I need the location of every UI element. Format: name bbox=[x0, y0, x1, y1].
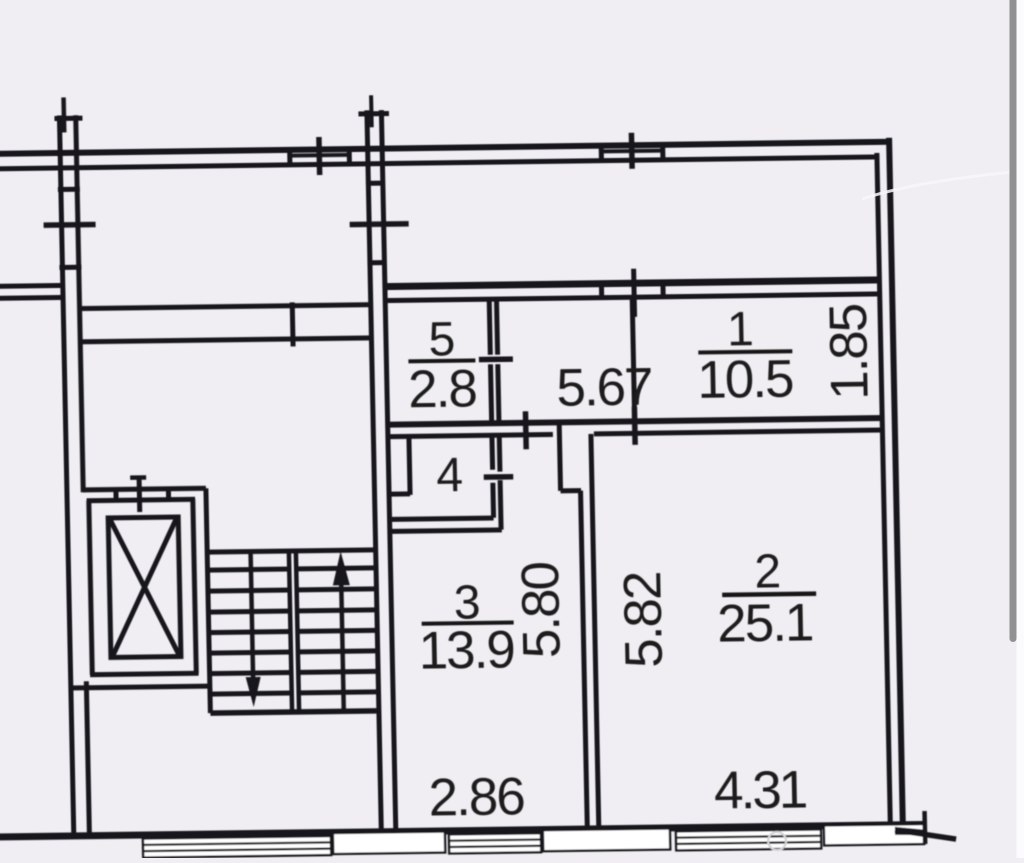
svg-text:5.67: 5.67 bbox=[556, 357, 652, 417]
svg-text:1.85: 1.85 bbox=[819, 304, 880, 400]
svg-text:5: 5 bbox=[428, 313, 456, 366]
svg-text:5.82: 5.82 bbox=[613, 572, 674, 668]
svg-text:13.9: 13.9 bbox=[418, 621, 514, 681]
svg-text:10.5: 10.5 bbox=[697, 350, 794, 410]
svg-text:4.31: 4.31 bbox=[713, 761, 806, 821]
svg-text:4: 4 bbox=[436, 449, 464, 502]
svg-text:25.1: 25.1 bbox=[717, 593, 813, 653]
svg-text:1: 1 bbox=[726, 303, 754, 356]
svg-text:2.86: 2.86 bbox=[428, 767, 525, 827]
svg-text:2.8: 2.8 bbox=[408, 359, 477, 419]
svg-text:2: 2 bbox=[754, 545, 782, 598]
svg-text:5.80: 5.80 bbox=[511, 562, 572, 658]
